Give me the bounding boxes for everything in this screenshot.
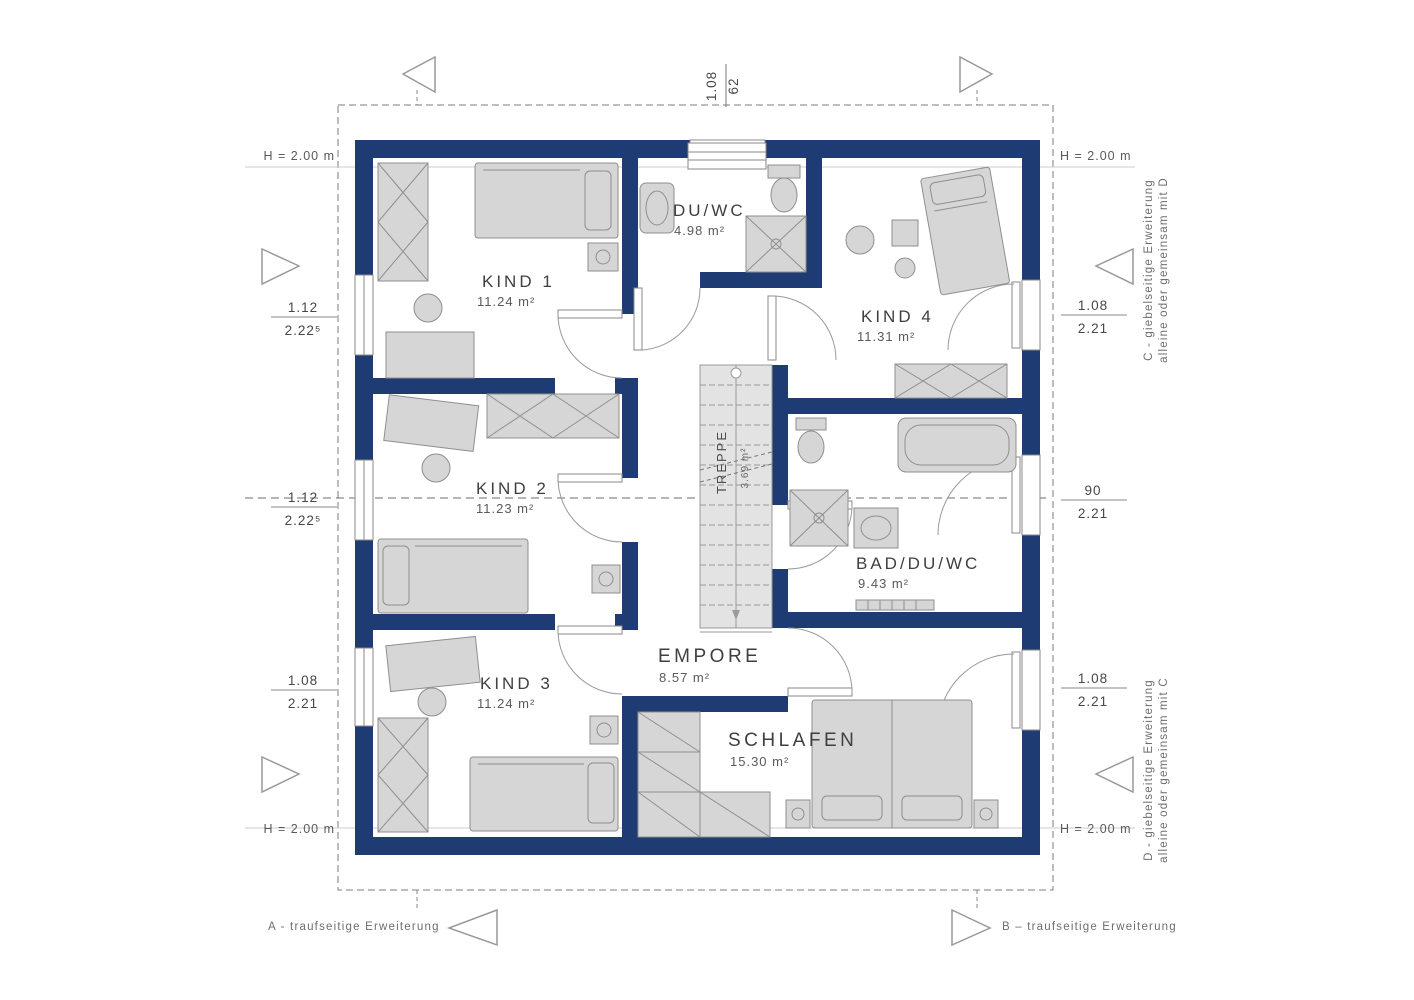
schlafen-furniture <box>638 700 998 837</box>
section-marker-top-left <box>403 57 435 92</box>
kind1-furniture <box>378 163 618 378</box>
annotation-b: B – traufseitige Erweiterung <box>1002 921 1177 933</box>
toilet-bowl <box>798 431 824 463</box>
wall-outer-right-3 <box>1022 535 1040 650</box>
room-label-kind3: KIND 3 <box>480 674 553 693</box>
wardrobe <box>378 163 428 281</box>
section-marker-bottom-left <box>449 910 497 945</box>
kind3-furniture <box>378 636 618 832</box>
pillow <box>902 796 962 820</box>
section-marker-left-upper <box>262 249 299 284</box>
dim-right-1: 1.08 2.21 <box>1061 298 1127 336</box>
desk <box>386 636 480 691</box>
stair-post <box>731 368 741 378</box>
wall-outer-right-4 <box>1022 730 1040 855</box>
doors <box>558 282 1020 730</box>
chair <box>414 294 442 322</box>
wall-outer-right-2 <box>1022 350 1040 455</box>
wall-kind2-kind3-a <box>373 614 555 630</box>
svg-text:2.21: 2.21 <box>1078 321 1108 336</box>
room-label-empore: EMPORE <box>658 646 761 667</box>
room-area-empore: 8.57 m² <box>659 670 710 685</box>
toilet-tank <box>796 418 826 430</box>
room-label-treppe: TREPPE <box>714 430 729 494</box>
section-marker-top-right <box>960 57 992 92</box>
room-area-bad: 9.43 m² <box>858 576 909 591</box>
floor-plan: KIND 1 11.24 m² DU/WC 4.98 m² KIND 4 11.… <box>0 0 1414 1000</box>
room-area-kind2: 11.23 m² <box>476 501 534 516</box>
wall-outer-right-1 <box>1022 140 1040 280</box>
wall-kind4-bad <box>772 398 1022 414</box>
height-label-top-left: H = 2.00 m <box>264 149 336 163</box>
svg-text:2.22⁵: 2.22⁵ <box>285 323 322 338</box>
dim-left-3: 1.08 2.21 <box>271 673 337 711</box>
svg-text:1.08: 1.08 <box>1078 671 1108 686</box>
annotation-d-line1: D - giebelseitige Erweiterung <box>1143 679 1155 861</box>
wall-hall-kind2-b <box>622 542 638 614</box>
toilet-tank <box>768 165 800 178</box>
room-label-schlafen: SCHLAFEN <box>728 730 857 751</box>
wardrobe <box>378 718 428 832</box>
window-dormer-top <box>688 140 766 169</box>
stool <box>895 258 915 278</box>
window-kind3 <box>355 648 373 726</box>
nightstand <box>588 243 618 271</box>
section-marker-left-lower <box>262 757 299 792</box>
dim-left-2: 1.12 2.22⁵ <box>271 490 337 528</box>
door-kind2 <box>558 474 622 542</box>
wall-outer-left-2 <box>355 355 373 460</box>
chair <box>422 454 450 482</box>
wall-outer-bottom <box>355 837 1040 855</box>
svg-text:1.12: 1.12 <box>288 490 318 505</box>
svg-text:90: 90 <box>1084 483 1101 498</box>
dim-right-3: 1.08 2.21 <box>1061 671 1127 709</box>
wall-outer-top-left <box>355 140 690 158</box>
side-table <box>892 220 918 246</box>
door-duwc <box>634 288 700 350</box>
door-opening-kind4-right <box>1022 280 1040 350</box>
dim-right-2: 90 2.21 <box>1061 483 1127 521</box>
window-kind1 <box>355 275 373 355</box>
wall-bad-left-lower <box>772 569 788 628</box>
annotation-c-line1: C - giebelseitige Erweiterung <box>1143 179 1155 361</box>
room-area-kind4: 11.31 m² <box>857 329 915 344</box>
room-area-kind3: 11.24 m² <box>477 696 535 711</box>
annotation-c-line2: alleine oder gemeinsam mit D <box>1158 177 1170 363</box>
room-label-kind2: KIND 2 <box>476 479 549 498</box>
room-label-kind1: KIND 1 <box>482 272 555 291</box>
wall-kind1-kind2-b <box>615 378 638 394</box>
wall-duwc-bottom <box>700 272 822 288</box>
floor-plan-canvas: KIND 1 11.24 m² DU/WC 4.98 m² KIND 4 11.… <box>0 0 1414 1000</box>
room-area-duwc: 4.98 m² <box>674 223 725 238</box>
wall-outer-top-right <box>765 140 1040 158</box>
svg-text:2.21: 2.21 <box>288 696 318 711</box>
room-area-kind1: 11.24 m² <box>477 294 535 309</box>
annotation-d-line2: alleine oder gemeinsam mit C <box>1158 677 1170 863</box>
nightstand <box>590 716 618 744</box>
dim-top-upper: 1.08 <box>704 71 719 101</box>
svg-text:2.21: 2.21 <box>1078 506 1108 521</box>
wall-stair-right <box>772 365 788 505</box>
room-area-treppe: 3.69 m² <box>740 448 751 489</box>
pillow <box>588 763 614 823</box>
wall-outer-left-3 <box>355 540 373 648</box>
pillow <box>822 796 882 820</box>
wardrobe <box>895 364 1007 398</box>
svg-text:1.08: 1.08 <box>288 673 318 688</box>
toilet-bowl <box>771 178 797 212</box>
nightstand <box>592 565 620 593</box>
door-opening-bad-right <box>1022 455 1040 535</box>
door-schlafen <box>788 628 852 696</box>
armchair <box>846 226 874 254</box>
nightstand <box>786 800 810 828</box>
window-kind2 <box>355 460 373 540</box>
door-kind4 <box>768 296 836 360</box>
wall-outer-left-4 <box>355 726 373 855</box>
desk <box>386 332 474 378</box>
wall-empore-bottom <box>622 696 788 712</box>
dim-left-1: 1.12 2.22⁵ <box>271 300 337 338</box>
svg-text:1.08: 1.08 <box>1078 298 1108 313</box>
nightstand <box>974 800 998 828</box>
wall-outer-left-1 <box>355 140 373 275</box>
wardrobe <box>487 394 619 438</box>
section-marker-right-lower <box>1096 757 1133 792</box>
section-marker-right-upper <box>1096 249 1133 284</box>
door-opening-schlafen-right <box>1022 650 1040 730</box>
stairs <box>700 365 772 632</box>
height-label-bottom-left: H = 2.00 m <box>264 822 336 836</box>
section-marker-bottom-right <box>952 910 990 945</box>
pillow <box>383 546 409 605</box>
annotation-a: A - traufseitige Erweiterung <box>268 921 440 933</box>
height-label-top-right: H = 2.00 m <box>1060 149 1132 163</box>
door-kind1 <box>558 310 622 378</box>
wall-duwc-kind4 <box>806 158 822 288</box>
pillow <box>585 171 611 230</box>
dim-top-lower: 62 <box>726 77 741 94</box>
room-area-schlafen: 15.30 m² <box>730 754 789 769</box>
svg-text:2.21: 2.21 <box>1078 694 1108 709</box>
wall-hall-kind2-a <box>622 394 638 478</box>
svg-text:2.22⁵: 2.22⁵ <box>285 513 322 528</box>
kind4-furniture <box>846 167 1010 398</box>
height-label-bottom-right: H = 2.00 m <box>1060 822 1132 836</box>
wall-kind1-kind2-a <box>373 378 555 394</box>
room-label-kind4: KIND 4 <box>861 307 934 326</box>
wall-kind3-schlafen <box>622 712 638 837</box>
chair <box>418 688 446 716</box>
desk <box>384 395 479 452</box>
door-kind3 <box>558 626 622 694</box>
svg-text:1.12: 1.12 <box>288 300 318 315</box>
room-label-duwc: DU/WC <box>673 201 746 220</box>
wall-bad-schlafen <box>788 612 1022 628</box>
room-label-bad: BAD/DU/WC <box>856 554 980 573</box>
